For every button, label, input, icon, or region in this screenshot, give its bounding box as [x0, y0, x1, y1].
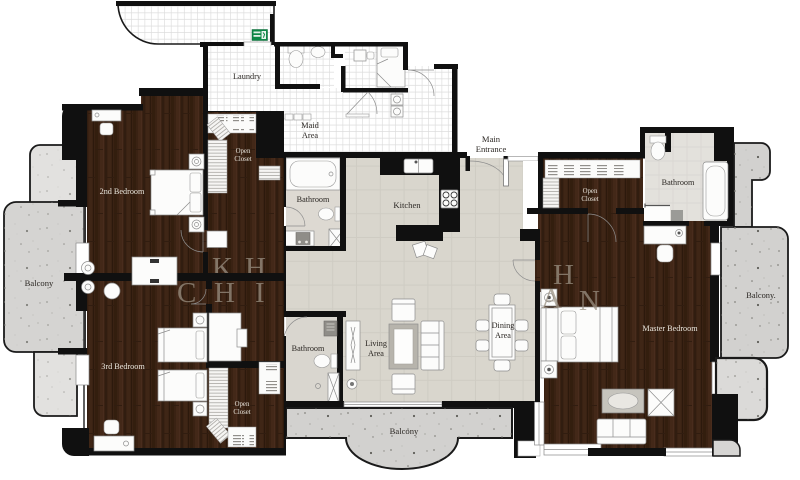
- svg-text:Open: Open: [236, 148, 251, 155]
- svg-text:3rd Bedroom: 3rd Bedroom: [101, 362, 145, 371]
- svg-text:Master Bedroom: Master Bedroom: [642, 324, 698, 333]
- svg-text:Laundry: Laundry: [233, 72, 262, 81]
- svg-text:Open: Open: [235, 401, 250, 408]
- svg-text:Balcony: Balcony: [25, 278, 54, 288]
- svg-text:Main: Main: [482, 134, 501, 144]
- svg-text:Closet: Closet: [581, 196, 598, 203]
- svg-text:Kitchen: Kitchen: [393, 200, 421, 210]
- svg-text:Entrance: Entrance: [476, 144, 507, 154]
- svg-text:Balcony.: Balcony.: [746, 291, 775, 300]
- svg-text:Closet: Closet: [234, 156, 251, 163]
- svg-text:2nd Bedroom: 2nd Bedroom: [100, 187, 145, 196]
- svg-text:Dining: Dining: [492, 321, 515, 330]
- svg-text:A: A: [541, 283, 562, 315]
- svg-text:Bathroom: Bathroom: [297, 195, 330, 204]
- svg-text:Open: Open: [583, 188, 598, 195]
- svg-text:Area: Area: [368, 349, 384, 358]
- svg-text:Living: Living: [365, 339, 387, 348]
- svg-text:Bathroom: Bathroom: [292, 344, 325, 353]
- svg-text:Bathroom: Bathroom: [662, 178, 695, 187]
- svg-text:Balcony: Balcony: [390, 426, 419, 436]
- svg-text:I: I: [255, 277, 265, 309]
- svg-text:Area: Area: [495, 331, 511, 340]
- svg-text:Closet: Closet: [233, 409, 250, 416]
- svg-text:Maid: Maid: [301, 121, 319, 130]
- svg-text:N: N: [579, 285, 600, 317]
- svg-text:H: H: [214, 277, 235, 309]
- svg-text:Area: Area: [302, 131, 319, 140]
